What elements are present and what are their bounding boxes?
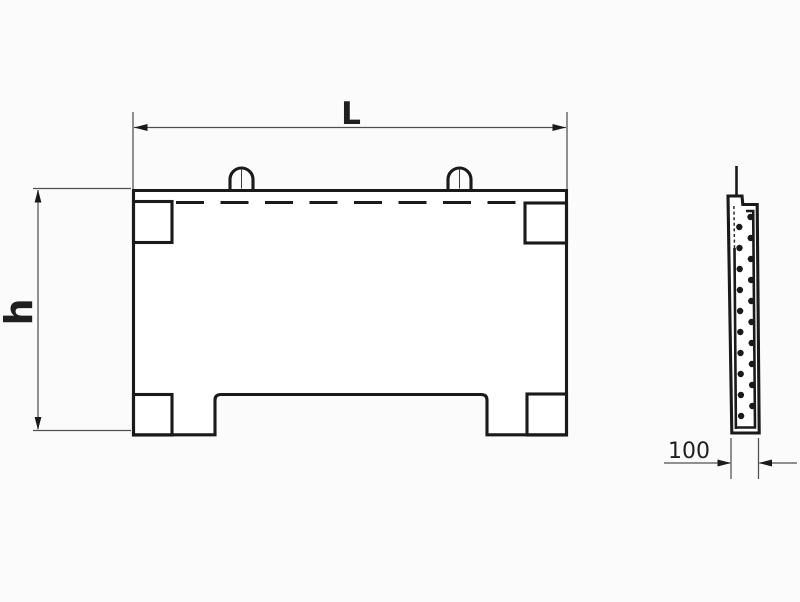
dim-height-label: h — [0, 298, 41, 325]
rebar-dot — [749, 382, 755, 388]
lifting-loop-right — [448, 168, 471, 190]
dim-length-arrow-right — [553, 124, 567, 131]
dim-thickness-label: 100 — [668, 439, 710, 464]
dim-height-arrow-top — [35, 190, 42, 203]
rebar-dot — [738, 392, 744, 398]
rebar-dot — [748, 298, 754, 304]
rebar-dot — [748, 277, 754, 283]
rebar-dot — [749, 340, 755, 346]
front-view — [134, 168, 567, 435]
dimension-height: h — [0, 189, 131, 431]
lifting-loop-left — [230, 168, 253, 190]
side-view — [728, 166, 759, 433]
dim-length-arrow-left — [134, 124, 148, 131]
rebar-dot — [747, 214, 753, 220]
rebar-dot — [749, 361, 755, 367]
rebar-dot — [737, 287, 743, 293]
dim-thickness-arrow-left — [718, 460, 732, 467]
rebar-dot — [738, 413, 744, 419]
drawing-canvas: L h — [0, 0, 800, 602]
rebar-dot — [736, 245, 742, 251]
side-inner-face-line — [735, 248, 736, 429]
rebar-dot — [737, 350, 743, 356]
rebar-dot — [737, 329, 743, 335]
rebar-dot — [737, 308, 743, 314]
rebar-dot — [748, 235, 754, 241]
rebar-dot — [736, 224, 742, 230]
panel-outline — [134, 191, 567, 435]
rebar-dot — [749, 403, 755, 409]
dim-length-label: L — [341, 96, 361, 132]
dimension-thickness: 100 — [664, 438, 797, 479]
dim-height-arrow-bottom — [35, 417, 42, 430]
rebar-dot — [748, 319, 754, 325]
rebar-dot — [737, 266, 743, 272]
dimension-length: L — [133, 96, 567, 189]
rebar-dot — [748, 256, 754, 262]
dim-thickness-arrow-right — [759, 460, 773, 467]
rebar-dot — [738, 371, 744, 377]
drawing-sheet: L h — [0, 0, 800, 602]
